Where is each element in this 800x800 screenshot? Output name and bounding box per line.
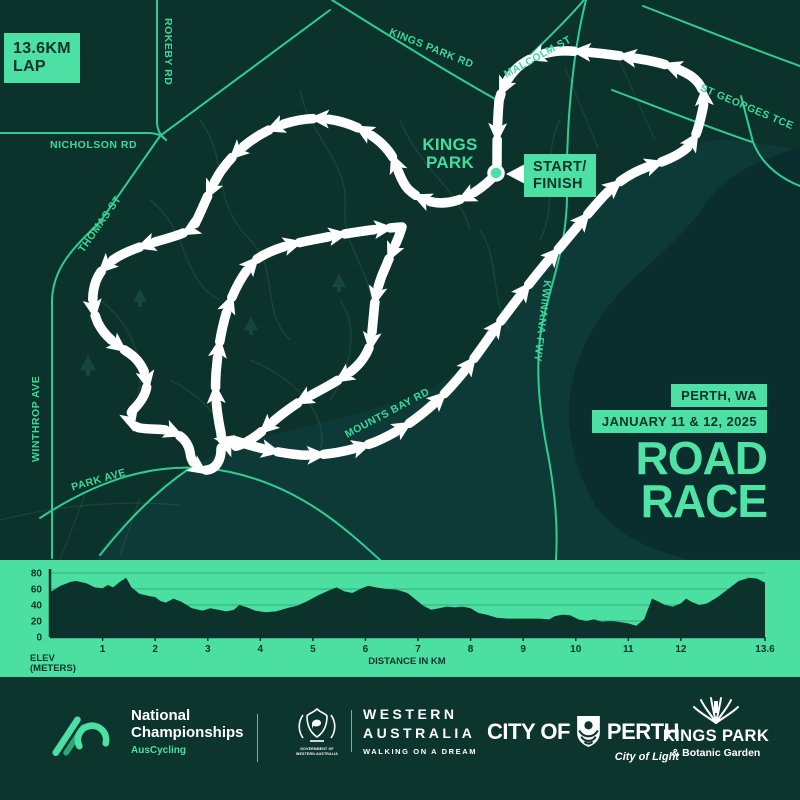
wa-government-logo: GOVERNMENT OF WESTERN AUSTRALIA WESTERN … bbox=[294, 705, 477, 756]
svg-text:8: 8 bbox=[468, 644, 474, 655]
auscycling-title: National Championships bbox=[131, 708, 244, 742]
dates-badge: JANUARY 11 & 12, 2025 bbox=[592, 410, 767, 433]
svg-text:4: 4 bbox=[258, 644, 264, 655]
svg-text:DISTANCE IN KM: DISTANCE IN KM bbox=[368, 656, 445, 667]
auscycling-mark-icon bbox=[52, 707, 118, 757]
svg-text:80: 80 bbox=[31, 569, 43, 580]
svg-text:12: 12 bbox=[675, 644, 687, 655]
perth-shield-icon bbox=[575, 715, 602, 748]
svg-text:20: 20 bbox=[31, 617, 43, 628]
start-finish-marker bbox=[489, 166, 503, 180]
elevation-section: 02040608012345678910111213.6ELEV(METERS)… bbox=[0, 560, 800, 677]
kings-park-sub: & Botanic Garden bbox=[672, 747, 761, 759]
wa-crest-icon bbox=[297, 705, 337, 745]
wa-wordmark: WESTERN AUSTRALIA bbox=[363, 705, 477, 741]
start-finish-badge: START/ FINISH bbox=[524, 154, 596, 197]
svg-text:2: 2 bbox=[152, 644, 158, 655]
perth-prefix: CITY OF bbox=[487, 721, 570, 743]
kangaroo-paw-icon bbox=[690, 695, 742, 725]
road-st-georges-1 bbox=[643, 6, 800, 66]
svg-text:13.6: 13.6 bbox=[755, 644, 775, 655]
svg-text:3: 3 bbox=[205, 644, 211, 655]
svg-text:10: 10 bbox=[570, 644, 582, 655]
footer-divider bbox=[257, 714, 258, 762]
svg-text:60: 60 bbox=[31, 585, 43, 596]
course-map: ROKEBY RD NICHOLSON RD THOMAS ST WINTHRO… bbox=[0, 0, 800, 560]
road-label-nicholson: NICHOLSON RD bbox=[50, 139, 137, 151]
start-finish-pointer bbox=[506, 164, 525, 184]
auscycling-logo: National Championships AusCycling bbox=[52, 707, 244, 757]
svg-text:1: 1 bbox=[100, 644, 106, 655]
kings-park-title: KINGS PARK bbox=[663, 727, 769, 746]
poster-root: ROKEBY RD NICHOLSON RD THOMAS ST WINTHRO… bbox=[0, 0, 800, 800]
svg-text:9: 9 bbox=[520, 644, 526, 655]
event-title: ROAD RACE bbox=[636, 437, 767, 523]
wa-crest-caption: GOVERNMENT OF WESTERN AUSTRALIA bbox=[296, 747, 338, 756]
kings-park-label: KINGS PARK bbox=[410, 136, 490, 171]
wa-logo-divider bbox=[351, 710, 352, 752]
svg-text:40: 40 bbox=[31, 601, 43, 612]
lap-distance-badge: 13.6KM LAP bbox=[4, 33, 80, 83]
location-badge: PERTH, WA bbox=[671, 384, 767, 407]
road-kings-park-rd bbox=[332, 0, 497, 100]
sponsor-footer: National Championships AusCycling GOVERN… bbox=[0, 677, 800, 800]
road-label-rokeby: ROKEBY RD bbox=[162, 18, 174, 85]
svg-text:6: 6 bbox=[363, 644, 369, 655]
kings-park-logo: KINGS PARK & Botanic Garden bbox=[660, 695, 772, 759]
svg-text:11: 11 bbox=[623, 644, 634, 655]
wa-tagline: WALKING ON A DREAM bbox=[363, 747, 477, 756]
svg-text:7: 7 bbox=[415, 644, 421, 655]
auscycling-sub: AusCycling bbox=[131, 745, 244, 756]
elevation-chart: 02040608012345678910111213.6ELEV(METERS)… bbox=[0, 560, 800, 677]
city-of-perth-logo: CITY OF PERTH City of Light bbox=[487, 715, 679, 763]
svg-text:(METERS): (METERS) bbox=[30, 663, 76, 674]
road-label-winthrop: WINTHROP AVE bbox=[30, 376, 42, 462]
svg-text:0: 0 bbox=[36, 633, 42, 644]
svg-text:5: 5 bbox=[310, 644, 316, 655]
